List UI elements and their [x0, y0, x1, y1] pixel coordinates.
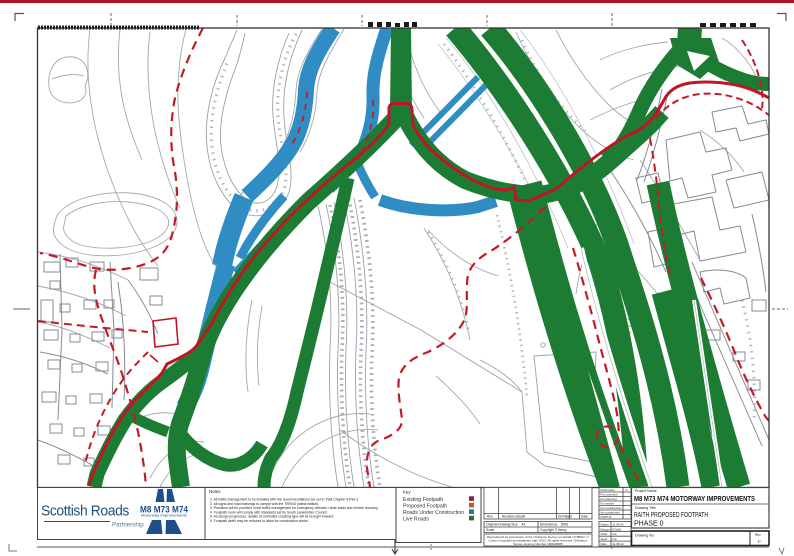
svg-text:E.McD: E.McD: [613, 527, 622, 531]
svg-text:Design: Design: [601, 527, 610, 531]
svg-text:Drawing No: Drawing No: [635, 534, 654, 538]
svg-text:For construction: For construction: [601, 506, 622, 510]
svg-text:Date: Date: [601, 542, 607, 546]
svg-text:Preliminary: Preliminary: [601, 488, 616, 492]
svg-text:11.08.14: 11.08.14: [613, 542, 624, 546]
svg-text:Notes: Notes: [209, 489, 221, 494]
svg-text:Partnership: Partnership: [112, 522, 144, 529]
svg-text:Date: Date: [581, 514, 588, 518]
svg-text:Copyright © Amey: Copyright © Amey: [540, 528, 567, 532]
svg-text:11.08.14: 11.08.14: [613, 522, 624, 526]
svg-text:Roads Under Construction: Roads Under Construction: [403, 510, 464, 516]
svg-text:PHASE 0: PHASE 0: [634, 521, 664, 528]
svg-text:X: X: [626, 488, 628, 492]
svg-text:Key: Key: [403, 490, 411, 495]
svg-text:M8 M73 M74 MOTORWAY IMPROVEMEN: M8 M73 M74 MOTORWAY IMPROVEMENTS: [634, 494, 755, 503]
svg-text:Scottish Roads: Scottish Roads: [41, 503, 129, 520]
svg-text:Proposed Footpath: Proposed Footpath: [403, 504, 447, 510]
svg-text:Live Roads: Live Roads: [403, 517, 429, 523]
svg-text:Chkd: Chkd: [601, 532, 608, 536]
svg-text:Revision details: Revision details: [502, 514, 525, 518]
svg-text:For planning: For planning: [601, 497, 617, 501]
svg-text:STATUS: STATUS: [601, 515, 612, 519]
svg-text:As constructed: As constructed: [601, 511, 621, 515]
svg-text:Rev: Rev: [755, 533, 761, 537]
svg-text:For tender: For tender: [601, 502, 614, 506]
svg-text:Appd: Appd: [601, 537, 608, 541]
svg-text:Scale: Scale: [486, 528, 494, 532]
svg-text:n/a: n/a: [613, 537, 617, 541]
svg-text:6. Footpath width may be reduc: 6. Footpath width may be reduced to allo…: [210, 519, 309, 523]
svg-text:Dimensions DMS: Dimensions DMS: [540, 523, 569, 527]
svg-text:n/a: n/a: [613, 532, 617, 536]
svg-text:Drawn: Drawn: [601, 522, 610, 526]
svg-text:Rev: Rev: [487, 514, 493, 518]
svg-text:Project Name: Project Name: [635, 489, 657, 493]
svg-text:P: P: [758, 539, 761, 544]
svg-text:Existing Footpath: Existing Footpath: [403, 497, 443, 503]
svg-text:Original Drawing Size A1: Original Drawing Size A1: [486, 523, 526, 527]
svg-text:Drawing Title: Drawing Title: [635, 506, 656, 510]
svg-text:Drn/Appd: Drn/Appd: [558, 514, 572, 518]
svg-text:For comment: For comment: [601, 493, 618, 497]
svg-text:Motorway Improvements: Motorway Improvements: [141, 514, 187, 518]
svg-text:RAITH PROPOSED FOOTPATH: RAITH PROPOSED FOOTPATH: [634, 512, 708, 519]
svg-text:Survey Licence Number 10002068: Survey Licence Number 100020685: [513, 542, 563, 546]
